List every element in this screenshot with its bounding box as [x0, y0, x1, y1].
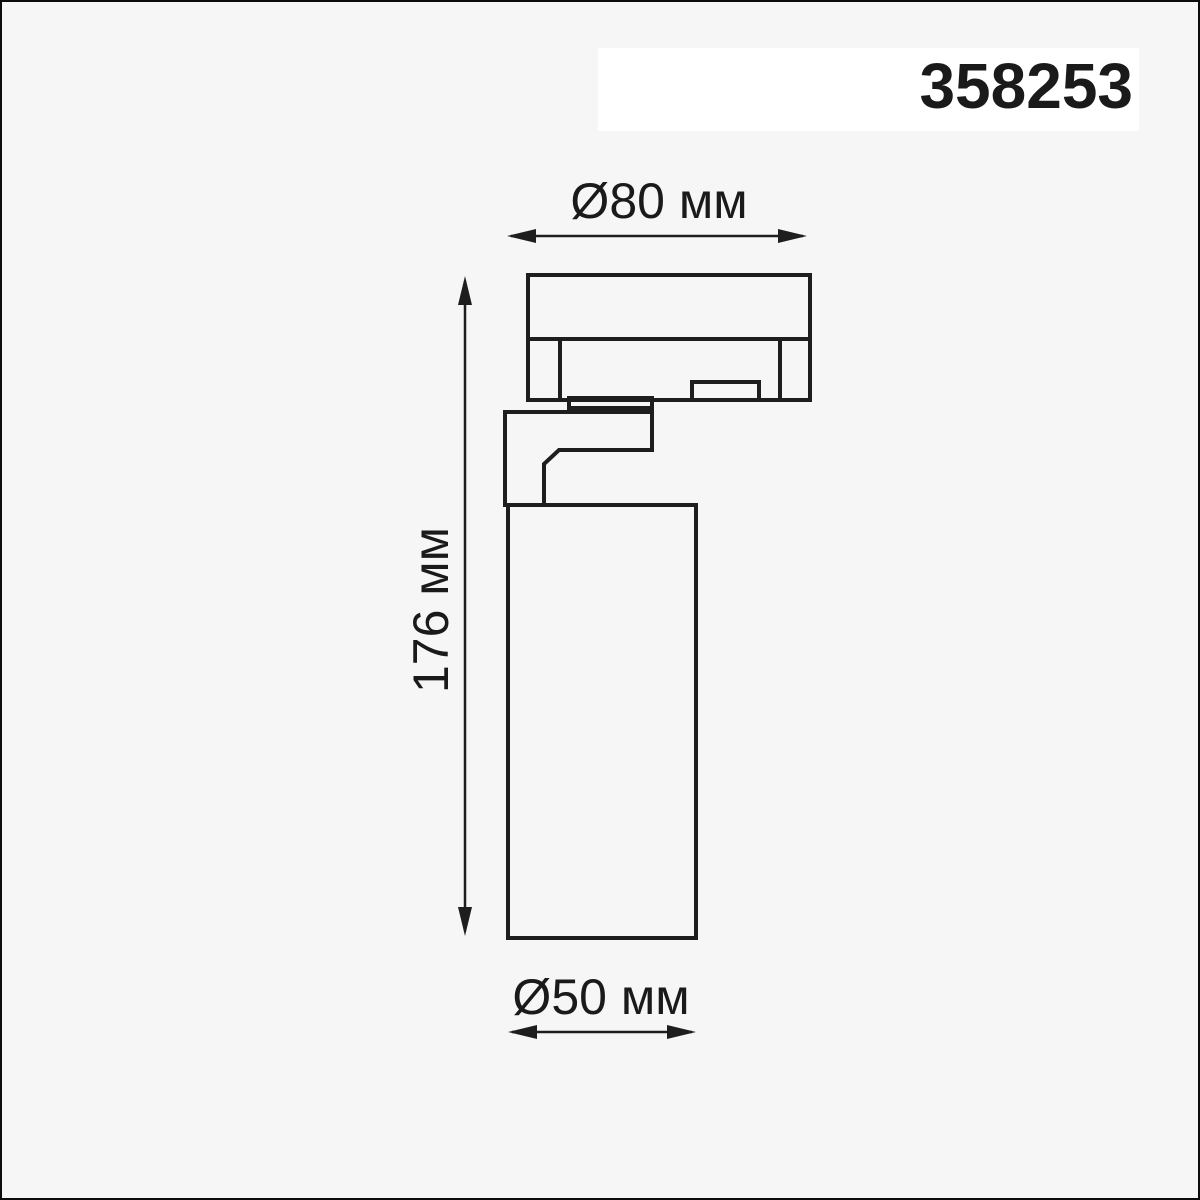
dimension-bottom-diameter: Ø50 мм: [508, 969, 696, 1039]
technical-drawing: Ø80 мм 176 мм Ø50 мм: [2, 2, 1200, 1200]
arrow-right-icon: [778, 229, 807, 243]
dimension-label-top-diameter: Ø80 мм: [570, 173, 747, 229]
arrow-left-icon: [508, 1025, 537, 1039]
arrow-up-icon: [458, 276, 472, 305]
arrow-right-icon: [667, 1025, 696, 1039]
dimension-top-diameter: Ø80 мм: [507, 173, 807, 243]
mounting-arm: [505, 412, 652, 505]
fixture-drawing: [505, 275, 810, 938]
dimension-label-bottom-diameter: Ø50 мм: [512, 969, 689, 1025]
diagram-canvas: 358253 Ø80 мм 176 мм: [0, 0, 1200, 1200]
track-adapter-clip: [692, 382, 759, 400]
adapter-stem: [569, 398, 652, 408]
dimension-label-height: 176 мм: [403, 527, 459, 693]
arrow-left-icon: [507, 229, 536, 243]
lamp-cylinder: [508, 505, 696, 938]
dimension-height: 176 мм: [403, 276, 472, 936]
arrow-down-icon: [458, 907, 472, 936]
